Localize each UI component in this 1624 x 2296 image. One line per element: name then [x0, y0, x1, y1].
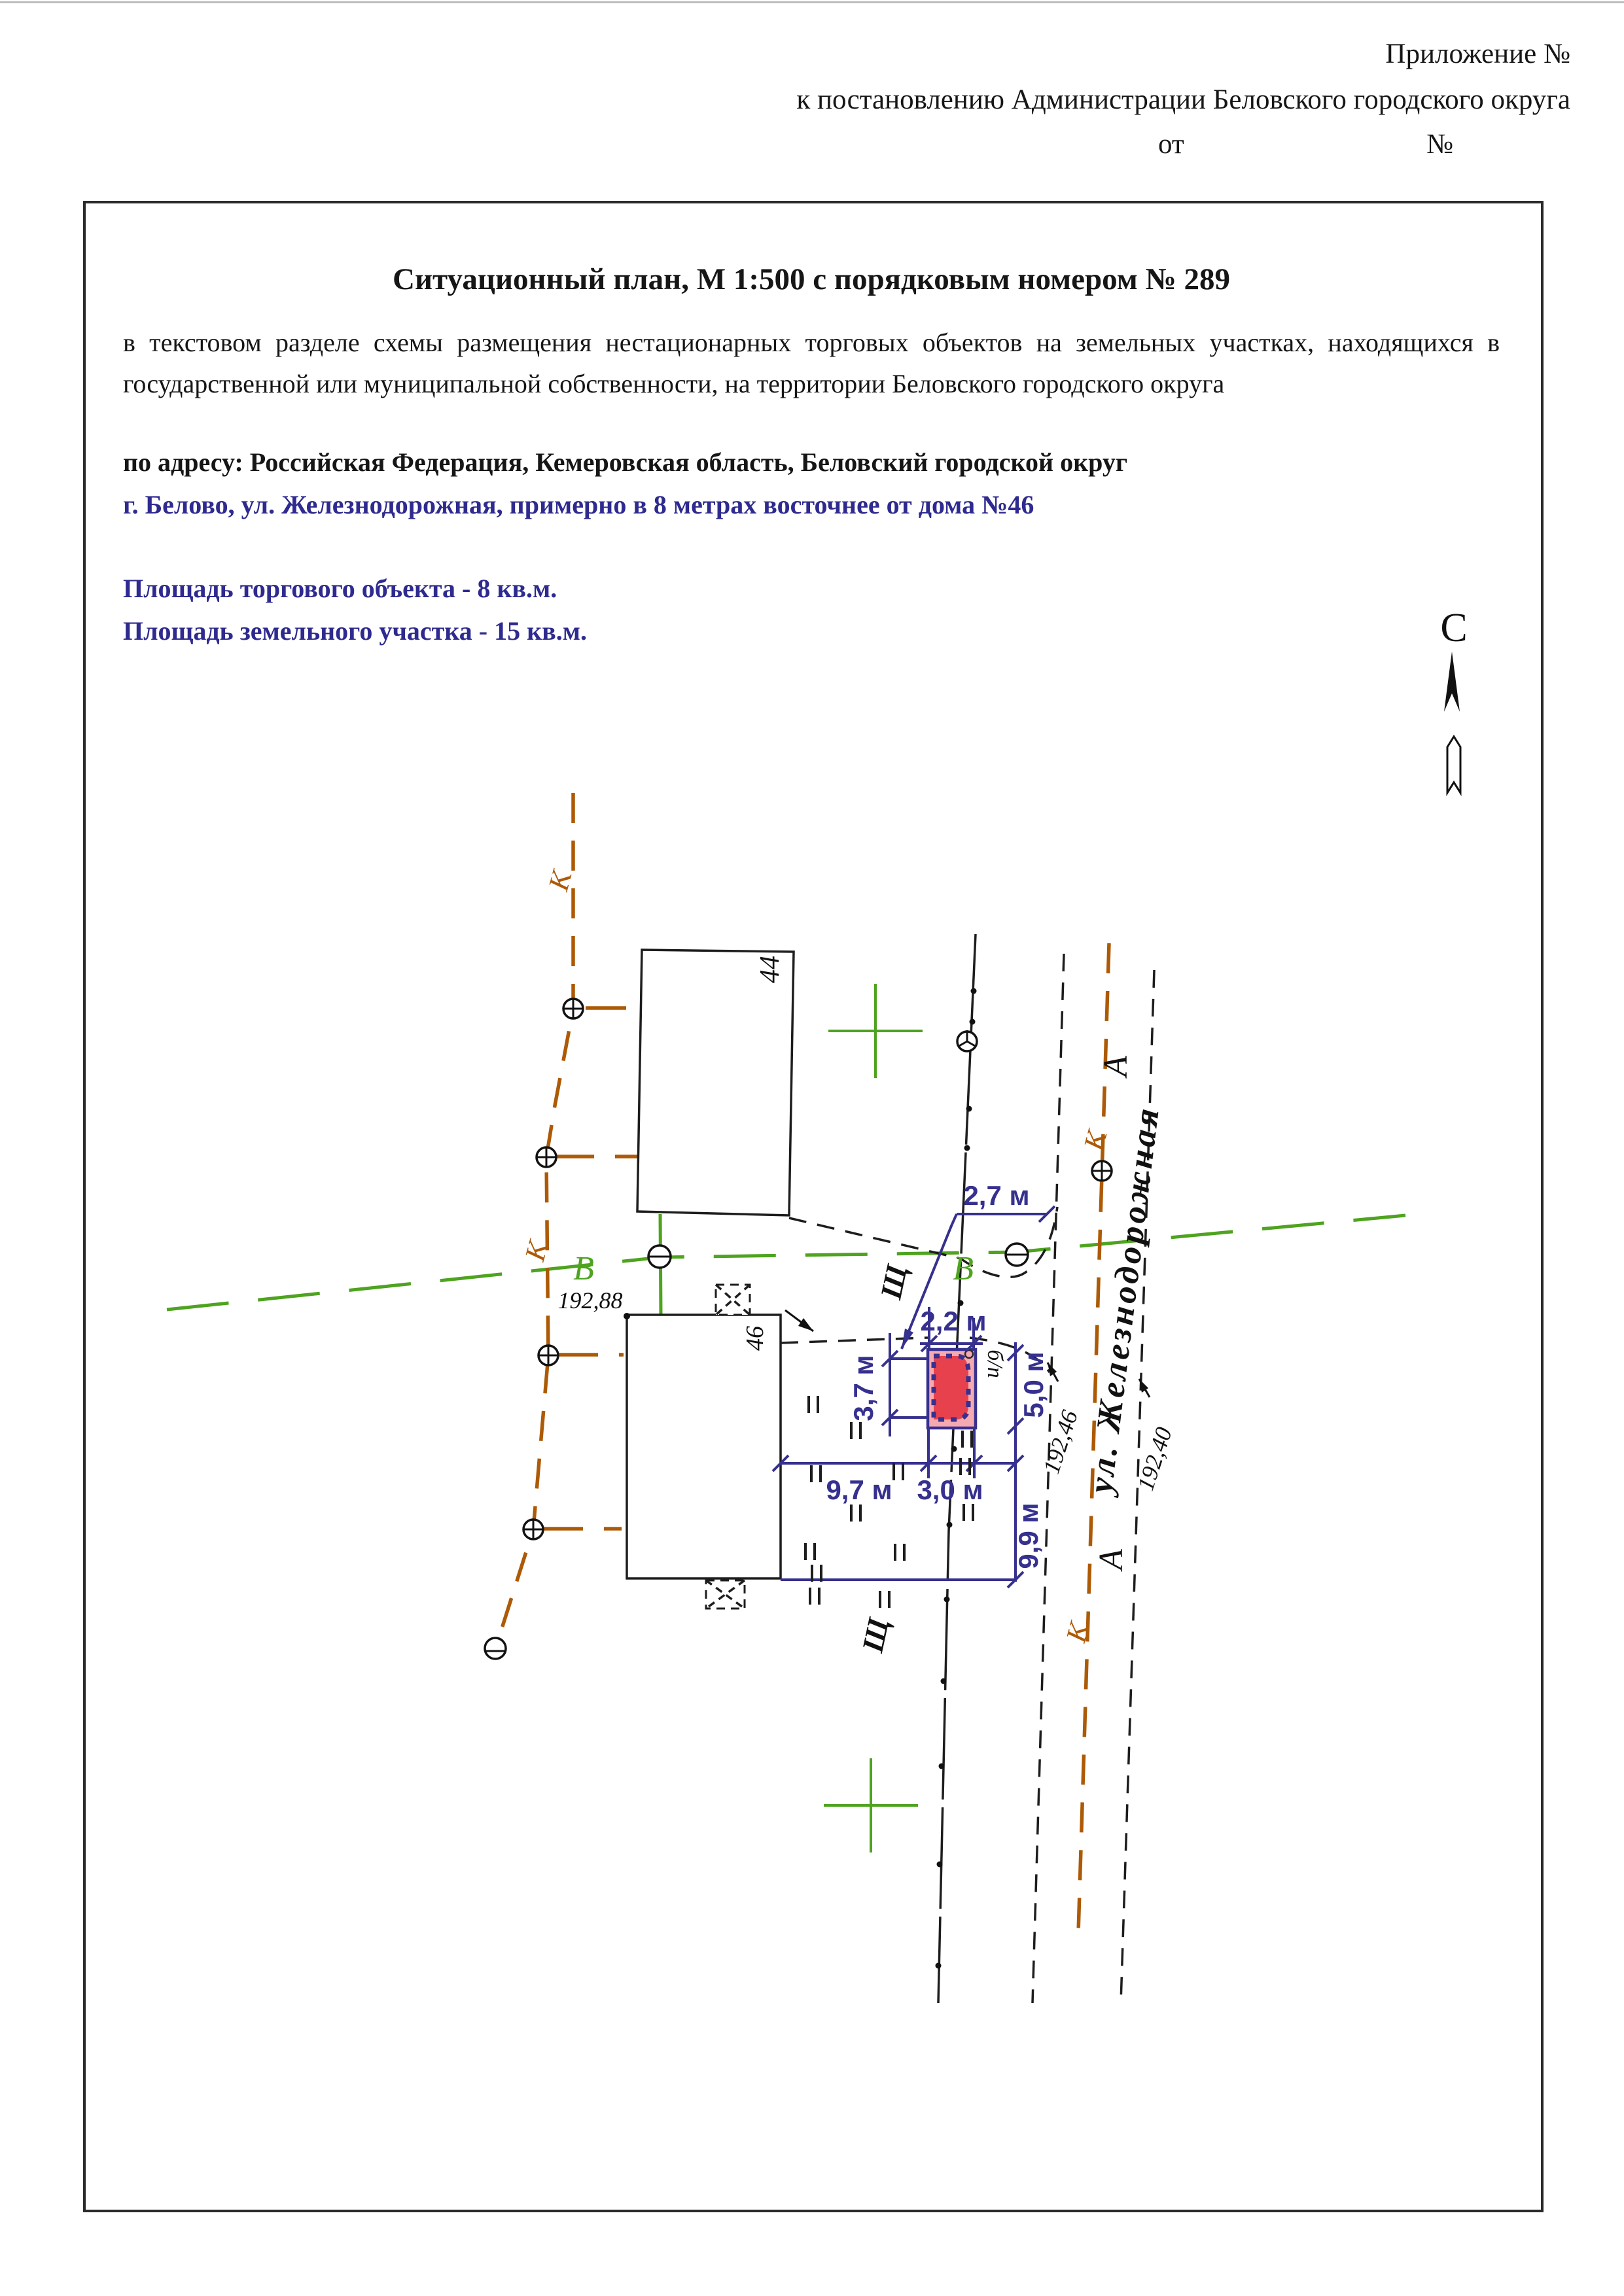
- k-line-label: К: [518, 1236, 555, 1265]
- dim-2-2: 2,2 м: [920, 1306, 986, 1336]
- pole-symbol-icon: [1092, 1161, 1112, 1181]
- water-main-line: [167, 1215, 1405, 1310]
- corner-point: [624, 1313, 630, 1319]
- house-44-label: 44: [755, 956, 785, 983]
- house46-leader: [785, 1310, 813, 1331]
- dim-9-9: 9,9 м: [1013, 1503, 1044, 1569]
- k-line-label: К: [1077, 1125, 1114, 1155]
- dim-line-9-7-3-0: [781, 1428, 1015, 1478]
- road-marker-a: А: [1093, 1549, 1130, 1572]
- water-line: [167, 1214, 1405, 1315]
- road-marker-a: А: [1097, 1056, 1135, 1079]
- pole-symbol-icon: [537, 1147, 556, 1167]
- utility-line-k-left: [499, 793, 640, 1639]
- grid-cross-icon: [824, 1758, 918, 1852]
- dim-line-3-7: [890, 1333, 928, 1436]
- cap-symbol-icon: [485, 1638, 506, 1659]
- house-46-label: 46: [741, 1326, 769, 1351]
- north-arrow-head-icon: [1444, 652, 1460, 712]
- water-well-icon: [648, 1245, 671, 1268]
- pole-symbol-icon: [538, 1346, 558, 1365]
- surface-label-shch: Щ: [855, 1614, 895, 1656]
- dim-3-0: 3,0 м: [917, 1474, 983, 1505]
- building-44: [637, 950, 794, 1215]
- dim-5-0: 5,0 м: [1018, 1351, 1049, 1418]
- street-light-icon: [957, 1030, 977, 1051]
- elevation-192-88: 192,88: [558, 1287, 623, 1313]
- dim-2-7: 2,7 м: [963, 1180, 1029, 1211]
- k-line-left: [499, 793, 573, 1639]
- north-label: С: [1440, 606, 1467, 650]
- trade-object-outline: [934, 1356, 968, 1419]
- water-line-label: В: [573, 1250, 594, 1287]
- dim-9-7: 9,7 м: [826, 1474, 892, 1505]
- north-arrow-tail-icon: [1447, 737, 1460, 793]
- building-46: [627, 1315, 781, 1578]
- surface-label-shch: Щ: [874, 1261, 913, 1302]
- water-line-label: В: [953, 1250, 974, 1287]
- entry-porch-icon: [716, 1285, 750, 1315]
- pole-symbol-icon: [523, 1520, 543, 1539]
- grid-cross-icon: [828, 984, 923, 1078]
- road-edge-west: [1033, 954, 1064, 2003]
- dim-3-7: 3,7 м: [848, 1355, 879, 1421]
- trade-object: [928, 1349, 976, 1428]
- pole-symbol-icon: [563, 999, 583, 1018]
- k-line-label: К: [1059, 1617, 1096, 1646]
- north-arrow: С: [1440, 606, 1467, 793]
- object-note-bp: б/п: [983, 1349, 1007, 1378]
- entry-porch-icon: [706, 1580, 745, 1609]
- site-plan: С: [0, 0, 1624, 2296]
- plan-labels: 44 46 192,88 192,46 192,40 ул. Железнодо…: [518, 865, 1177, 1656]
- buildings: [624, 950, 794, 1609]
- water-well-icon: [1006, 1244, 1028, 1266]
